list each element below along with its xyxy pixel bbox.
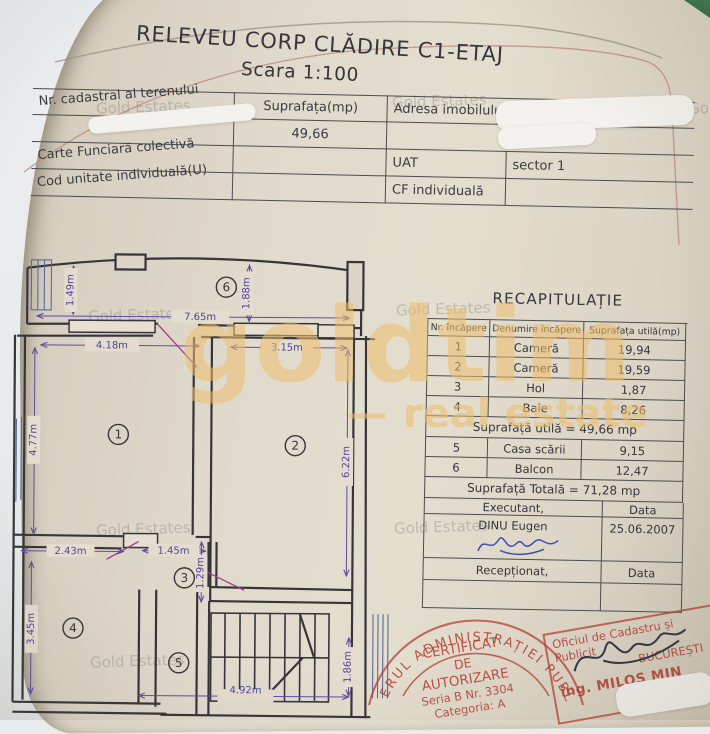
- brand-sub-text: real estate: [403, 394, 648, 434]
- info-empty-cell: [233, 173, 387, 203]
- brand-dash: —: [347, 394, 387, 434]
- info-uat-label: UAT: [386, 149, 507, 179]
- recap-cell: 9,15: [582, 440, 684, 462]
- receptionat-date-empty: [601, 583, 683, 613]
- info-label-unitate: Cod unitate individuală(U): [31, 169, 234, 200]
- room-4-label: 4: [69, 621, 77, 635]
- brand-watermark-sub: — real estate: [347, 394, 648, 434]
- info-uat-value: sector 1: [506, 152, 694, 183]
- dim-4-18: 4.18m: [96, 340, 128, 351]
- stairs: [210, 613, 329, 702]
- recap-cell: Casa scării: [488, 438, 582, 460]
- recap-cell: 6: [425, 457, 487, 478]
- dim-1-45: 1.45m: [157, 546, 189, 557]
- dim-1-49: 1.49m: [65, 274, 76, 306]
- recap-cell: Balcon: [487, 458, 581, 480]
- dim-4-92: 4.92m: [230, 685, 262, 696]
- stamp-line-de: DE: [453, 655, 473, 673]
- info-cf-value: [506, 179, 694, 210]
- room-2-label: 2: [291, 439, 299, 453]
- dim-4-77: 4.77m: [28, 424, 39, 456]
- executant-signature: [470, 529, 567, 559]
- info-suprafata-value: 49,66: [234, 119, 388, 149]
- dim-6-22: 6.22m: [341, 446, 352, 478]
- info-empty-cell: [233, 146, 387, 176]
- recap-cell: 5: [426, 437, 488, 458]
- room-3-label: 3: [180, 571, 188, 585]
- executant-date: 25.06.2007: [602, 517, 684, 563]
- room-5-label: 5: [175, 656, 183, 670]
- recap-cell: 12,47: [581, 460, 683, 482]
- data-label-2: Data: [601, 561, 682, 585]
- dim-2-43: 2.43m: [54, 546, 86, 557]
- info-cf-label: CF individuală: [386, 176, 507, 206]
- dim-1-29: 1.29m: [195, 557, 206, 589]
- brand-watermark-main: goldtim: [180, 295, 632, 398]
- room-1-label: 1: [114, 427, 122, 441]
- data-label: Data: [603, 501, 684, 519]
- info-suprafata-header: Suprafața(mp): [234, 92, 388, 122]
- executant-name-cell: DINU Eugen: [424, 514, 603, 561]
- dim-3-45: 3.45m: [26, 613, 37, 645]
